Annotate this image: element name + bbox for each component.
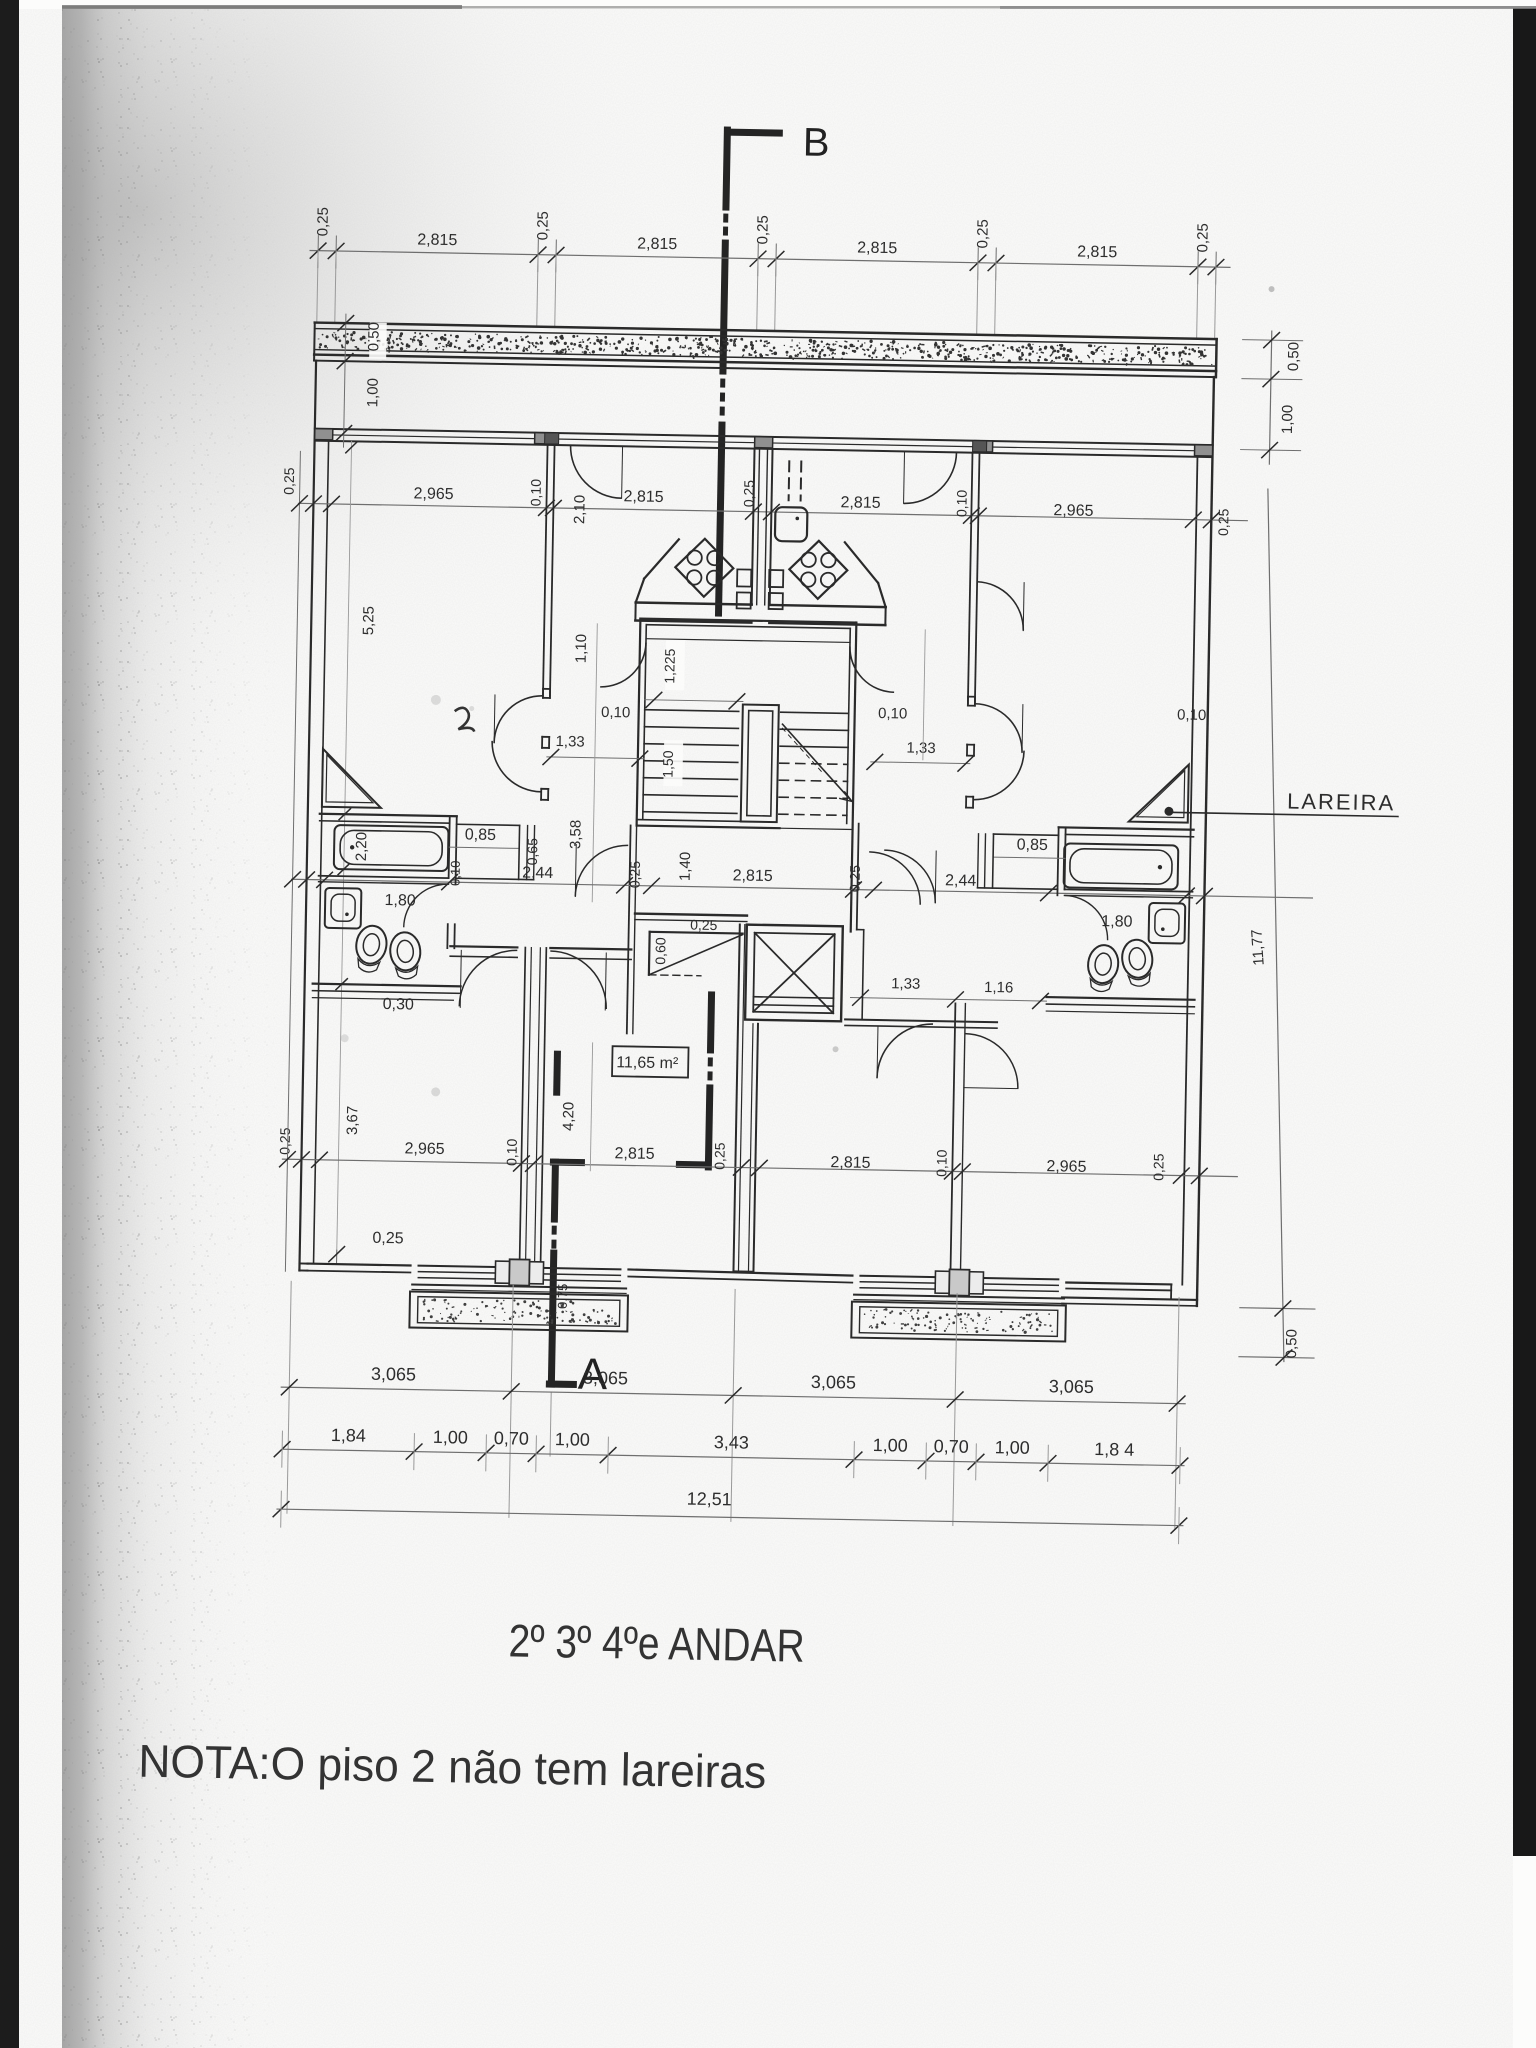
svg-text:1,00: 1,00	[995, 1437, 1030, 1458]
svg-text:1,40: 1,40	[677, 852, 695, 882]
svg-text:0,10: 0,10	[1177, 706, 1207, 724]
svg-text:0,10: 0,10	[503, 1138, 520, 1166]
svg-text:0,10: 0,10	[527, 479, 544, 507]
svg-text:1,8 4: 1,8 4	[1094, 1439, 1134, 1460]
svg-text:2,965: 2,965	[1053, 502, 1093, 520]
svg-text:1,50: 1,50	[659, 750, 676, 778]
svg-text:0,85: 0,85	[1017, 837, 1049, 855]
svg-text:0,25: 0,25	[974, 219, 992, 249]
svg-text:0,25: 0,25	[1150, 1153, 1167, 1181]
svg-text:2,815: 2,815	[857, 240, 897, 258]
svg-text:0,25: 0,25	[626, 861, 643, 889]
svg-text:0,70: 0,70	[494, 1428, 529, 1449]
svg-text:2,815: 2,815	[417, 231, 457, 249]
svg-text:5,25: 5,25	[360, 606, 378, 636]
svg-text:2,815: 2,815	[614, 1145, 654, 1163]
svg-text:0,10: 0,10	[878, 705, 908, 723]
svg-text:0,25: 0,25	[1194, 223, 1212, 253]
svg-text:1,16: 1,16	[984, 979, 1014, 997]
svg-text:2,965: 2,965	[1046, 1158, 1086, 1176]
svg-text:1,00: 1,00	[555, 1429, 590, 1450]
svg-text:2,815: 2,815	[637, 235, 677, 253]
svg-text:2,815: 2,815	[1077, 244, 1117, 262]
svg-text:0,25: 0,25	[711, 1142, 728, 1170]
svg-text:1,10: 1,10	[573, 634, 591, 664]
svg-text:0,85: 0,85	[465, 826, 497, 844]
svg-text:3,065: 3,065	[811, 1372, 856, 1393]
svg-text:0,25: 0,25	[277, 1127, 294, 1155]
svg-text:2º 3º 4ºe ANDAR: 2º 3º 4ºe ANDAR	[508, 1614, 805, 1671]
svg-text:0,25: 0,25	[1215, 508, 1232, 536]
svg-text:1,00: 1,00	[873, 1435, 908, 1456]
svg-text:2,44: 2,44	[945, 872, 977, 890]
svg-text:0,25: 0,25	[372, 1230, 404, 1248]
svg-text:2,815: 2,815	[623, 488, 663, 506]
svg-text:0,50: 0,50	[365, 322, 383, 352]
svg-text:0,25: 0,25	[754, 215, 772, 245]
svg-text:1,225: 1,225	[661, 648, 678, 684]
svg-text:3,065: 3,065	[371, 1364, 416, 1385]
svg-text:0,25: 0,25	[281, 467, 298, 495]
svg-text:0,10: 0,10	[601, 704, 631, 722]
svg-text:B: B	[802, 120, 829, 164]
svg-text:1,33: 1,33	[906, 739, 936, 757]
svg-text:3,67: 3,67	[344, 1106, 362, 1136]
svg-text:2,815: 2,815	[840, 494, 880, 512]
svg-text:2,20: 2,20	[353, 832, 371, 862]
svg-text:0,60: 0,60	[652, 937, 669, 965]
svg-text:0,25: 0,25	[846, 865, 863, 893]
svg-text:1,00: 1,00	[1279, 405, 1297, 435]
svg-text:4,20: 4,20	[560, 1102, 578, 1132]
svg-text:0,10: 0,10	[933, 1149, 950, 1177]
svg-text:2,815: 2,815	[733, 867, 773, 885]
svg-text:1,80: 1,80	[384, 892, 416, 910]
svg-text:3,065: 3,065	[583, 1368, 628, 1389]
svg-text:0,30: 0,30	[383, 996, 415, 1014]
svg-text:1,80: 1,80	[1101, 913, 1133, 931]
svg-text:12,51: 12,51	[687, 1489, 732, 1510]
svg-text:0,25: 0,25	[534, 211, 552, 241]
svg-text:1,00: 1,00	[433, 1427, 468, 1448]
svg-text:2,965: 2,965	[413, 485, 453, 503]
svg-text:11,77: 11,77	[1248, 929, 1267, 967]
svg-text:0,50: 0,50	[1283, 1329, 1301, 1359]
svg-text:1,33: 1,33	[555, 733, 585, 751]
svg-text:1,00: 1,00	[364, 378, 382, 408]
svg-text:0,70: 0,70	[934, 1436, 969, 1457]
svg-text:3,43: 3,43	[714, 1432, 749, 1453]
svg-text:LAREIRA: LAREIRA	[1287, 788, 1396, 815]
svg-text:2,965: 2,965	[404, 1140, 444, 1158]
svg-text:0,25: 0,25	[314, 207, 332, 237]
svg-text:0,10: 0,10	[953, 489, 970, 517]
svg-text:2,10: 2,10	[571, 495, 589, 525]
svg-text:1,84: 1,84	[331, 1425, 366, 1446]
svg-text:11,65 m²: 11,65 m²	[616, 1054, 679, 1072]
svg-text:0,25: 0,25	[690, 917, 718, 934]
svg-text:1,33: 1,33	[891, 975, 921, 993]
svg-text:3,065: 3,065	[1049, 1376, 1094, 1397]
svg-text:0,50: 0,50	[1285, 342, 1303, 372]
svg-text:2,815: 2,815	[830, 1154, 870, 1172]
